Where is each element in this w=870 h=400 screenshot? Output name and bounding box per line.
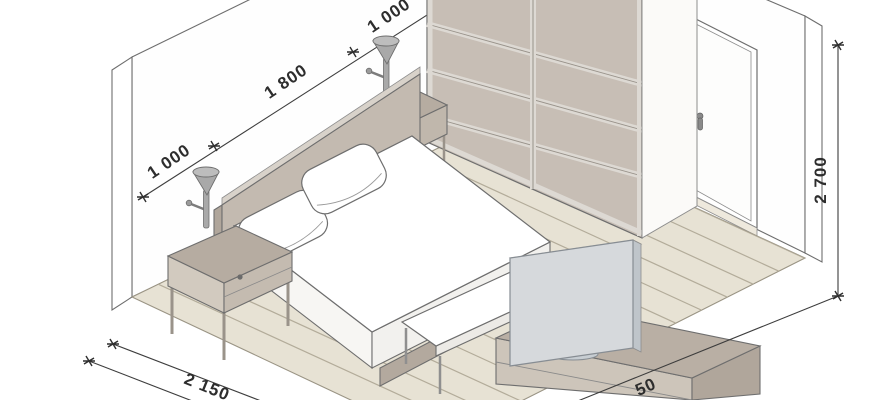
tv-side-edge: [633, 240, 641, 352]
bedroom-dimension-diagram: 1 000 1 800 1 000: [0, 0, 870, 400]
wardrobe-side: [642, 0, 697, 238]
interior-door: [688, 15, 757, 236]
left-wall-edge: [112, 57, 132, 310]
left-nightstand-knob: [237, 274, 242, 279]
diagram-svg: 1 000 1 800 1 000: [0, 0, 870, 400]
dim-label-wall-height: 2 700: [811, 156, 830, 204]
door-handle-icon: [697, 113, 703, 130]
tv-screen: [510, 240, 633, 366]
right-wall-edge: [805, 16, 822, 262]
tv: [510, 240, 641, 366]
